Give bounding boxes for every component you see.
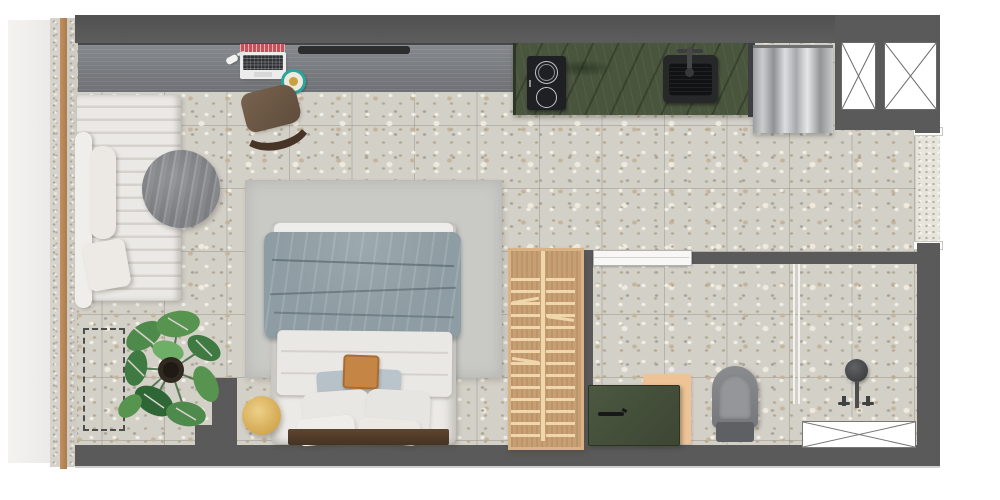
door-seam — [594, 257, 689, 258]
shower-valve-left-stem — [842, 396, 846, 406]
blanket-fold-line — [281, 350, 448, 354]
duvet-fold-line — [272, 259, 454, 267]
shaft-x-icon — [842, 43, 875, 109]
glass-partition — [793, 264, 801, 404]
kitchen-sink — [663, 55, 718, 103]
toilet-seat — [719, 375, 751, 419]
cooktop — [527, 56, 566, 110]
accent-pillow — [342, 354, 379, 389]
round-table — [142, 150, 220, 228]
fridge — [753, 45, 833, 133]
shower-valve-right-stem — [866, 396, 870, 406]
glass-line — [793, 264, 795, 404]
sofa-pillow — [82, 238, 132, 293]
laptop — [238, 44, 288, 80]
shower-pole — [855, 381, 859, 408]
laptop-trackpad — [254, 72, 272, 77]
desk-slot — [298, 46, 410, 54]
duvet-fold-line — [274, 312, 454, 319]
desk-chair — [236, 86, 306, 140]
shower — [836, 356, 880, 418]
sofa-arm-cushion — [90, 146, 116, 239]
burner-front — [536, 87, 557, 108]
shaft-small — [841, 42, 876, 110]
wardrobe-slats-left — [511, 269, 540, 441]
entry-floor — [916, 133, 940, 243]
wall-bathroom-top — [690, 252, 918, 264]
window-frame — [60, 18, 67, 469]
faucet-spout — [685, 68, 694, 77]
duvet — [264, 232, 461, 338]
wall-right-lower — [917, 243, 940, 466]
toilet-tank — [716, 422, 754, 442]
toilet — [712, 366, 758, 442]
shaft-x-icon — [885, 43, 936, 109]
bathroom-door — [593, 250, 692, 266]
shower-tray-x-icon — [803, 422, 915, 447]
faucet-neck — [687, 47, 692, 69]
window-sill-outer — [50, 18, 60, 467]
burner-rear-inner — [538, 64, 555, 81]
wall-top — [75, 15, 835, 43]
teal-dish-center — [289, 77, 298, 86]
plant — [116, 306, 222, 436]
bed-frame — [288, 429, 449, 445]
duvet-fold-line — [270, 287, 456, 295]
vanity — [588, 385, 680, 446]
balcony-floor — [8, 20, 50, 463]
shower-head — [845, 359, 868, 382]
shaft-large — [884, 42, 937, 110]
wardrobe-divider — [541, 251, 545, 441]
floor-plan — [0, 0, 1000, 500]
side-stool — [242, 396, 281, 435]
laptop-keyboard — [243, 55, 283, 70]
wardrobe-slats-right — [546, 269, 575, 441]
shower-tray — [802, 421, 916, 448]
cooktop-controls — [529, 80, 531, 87]
plant-illustration — [116, 306, 222, 436]
glass-line — [798, 264, 800, 404]
vanity-handle — [598, 412, 624, 416]
wardrobe — [508, 248, 584, 450]
